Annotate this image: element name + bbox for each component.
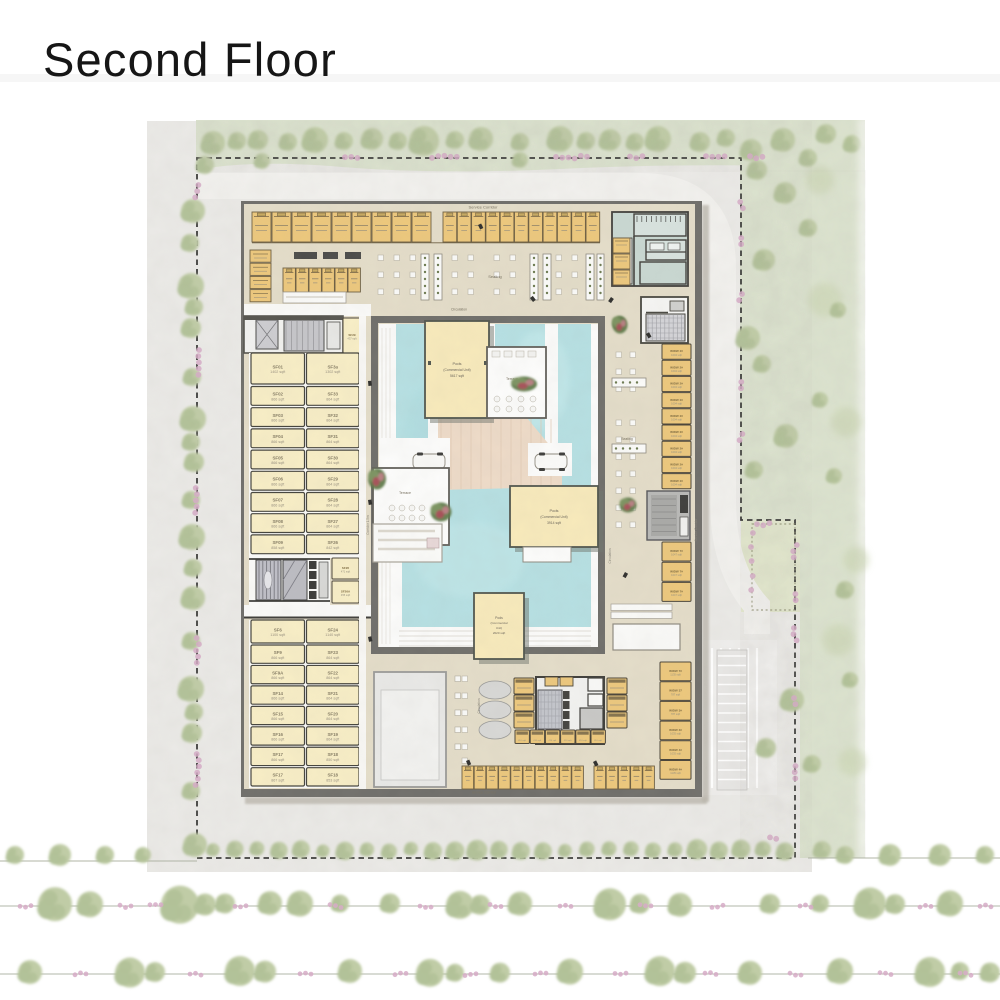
svg-text:Second Floor: Second Floor xyxy=(43,33,337,86)
